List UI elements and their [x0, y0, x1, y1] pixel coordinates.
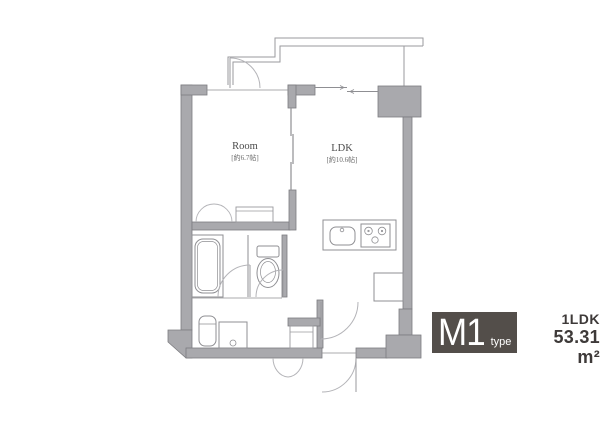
ps-door-left-arc	[273, 358, 288, 377]
toilet-room	[257, 246, 279, 288]
wall-room-water-divider	[192, 222, 290, 230]
burner-dot-icon	[381, 230, 382, 231]
shoe-closet	[290, 326, 313, 348]
washroom	[199, 316, 247, 348]
toilet-tank	[257, 246, 279, 257]
walls	[168, 85, 421, 358]
bathroom	[192, 235, 282, 298]
unit-info: 1LDK 53.31 m²	[526, 312, 600, 367]
bathtub-inner	[198, 242, 218, 291]
unit-layout-label: 1LDK	[526, 312, 600, 327]
unit-type-badge: M1 type 1LDK 53.31 m²	[432, 312, 600, 367]
wall-partition-anchor	[288, 85, 296, 108]
ps-door-right-arc	[288, 358, 303, 377]
wall-partition-lower	[289, 190, 296, 230]
wall-bottom-right-seg	[356, 348, 387, 358]
burner-dot-icon	[368, 230, 369, 231]
closet-door-left	[196, 204, 214, 222]
closet-door-right	[214, 204, 232, 222]
wall-hall-top	[288, 318, 320, 326]
burner-icon	[378, 227, 386, 235]
balcony-outline	[228, 38, 423, 86]
wall-bottom	[186, 348, 322, 358]
unit-type-suffix: type	[491, 337, 512, 348]
storage-counter	[236, 207, 273, 222]
kitchen	[323, 220, 403, 301]
wall-top-left-seg	[181, 85, 207, 95]
ldk-door-arc	[321, 302, 358, 339]
washing-machine	[219, 322, 247, 348]
ldk-label: LDK	[331, 143, 353, 154]
faucet-icon	[340, 228, 344, 232]
kitchen-sink	[330, 227, 355, 245]
wall-right	[403, 117, 412, 309]
sliding-partition	[291, 108, 293, 190]
floorplan-page: Room [約6.7帖] LDK [約10.6帖] M1 type 1LDK 5…	[0, 0, 600, 424]
unit-type-box: M1 type	[432, 312, 517, 353]
room-label: Room	[232, 141, 258, 152]
burner-icon	[372, 237, 378, 243]
wall-right-stem	[399, 309, 412, 335]
bathroom-outline	[192, 235, 223, 297]
washbasin	[199, 316, 216, 346]
bathtub	[195, 239, 220, 293]
unit-area-label: 53.31 m²	[526, 327, 600, 367]
wall-left	[181, 85, 192, 330]
pillar-top-right	[378, 86, 421, 117]
room-size-label: [約6.7帖]	[231, 153, 258, 162]
unit-type-code: M1	[438, 313, 485, 353]
washing-machine-drain-icon	[230, 340, 236, 346]
entry-door-arc	[322, 358, 356, 392]
refrigerator-space	[374, 273, 403, 301]
ldk-size-label: [約10.6帖]	[327, 155, 358, 164]
balcony-inner-line	[233, 46, 423, 85]
pillar-bottom-right	[386, 335, 421, 358]
burner-icon	[365, 227, 373, 235]
